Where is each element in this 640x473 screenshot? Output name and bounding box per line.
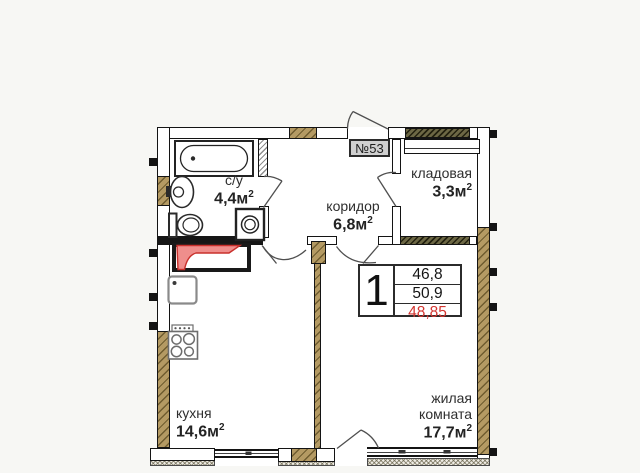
room-area: 17,7м2 xyxy=(396,423,472,443)
window-mullion-marks xyxy=(246,450,451,455)
room-label-corridor: коридор 6,8м2 xyxy=(320,199,386,235)
room-area: 4,4м2 xyxy=(203,189,265,209)
washing-machine-icon xyxy=(236,209,264,240)
room-name: с/у xyxy=(203,173,265,189)
stove-icon xyxy=(169,325,198,359)
area-value-1: 46,8 xyxy=(395,266,460,285)
area-info-table: 1 46,8 50,9 48,85 xyxy=(358,264,462,317)
room-label-bathroom: с/у 4,4м2 xyxy=(203,173,265,209)
room-name: коридор xyxy=(320,199,386,215)
room-name: кухня xyxy=(176,406,256,422)
room-area: 3,3м2 xyxy=(400,182,472,202)
kitchen-door-arc xyxy=(262,246,306,264)
entrance-door-arc xyxy=(348,112,389,130)
floor-plan: №53 1 46,8 50,9 48,85 с/у 4,4м2 коридор … xyxy=(0,0,640,473)
area-value-highlighted: 48,85 xyxy=(395,304,460,322)
balcony-door-arc xyxy=(337,430,379,449)
vent-highlight xyxy=(177,246,240,270)
kitchen-sink-icon xyxy=(169,277,197,304)
area-value-2: 50,9 xyxy=(395,285,460,304)
room-name: комната xyxy=(396,407,472,423)
room-label-kitchen: кухня 14,6м2 xyxy=(176,406,256,442)
living-room-door-arc xyxy=(337,246,379,264)
washbasin-icon xyxy=(166,177,194,208)
room-label-living-room: жилая комната 17,7м2 xyxy=(396,391,472,442)
room-name: кладовая xyxy=(400,166,472,182)
rooms-count: 1 xyxy=(360,266,395,315)
room-area: 14,6м2 xyxy=(176,422,256,442)
room-name: жилая xyxy=(396,391,472,407)
room-label-storage: кладовая 3,3м2 xyxy=(400,166,472,202)
plan-symbols xyxy=(0,0,640,473)
bathroom-door-arc xyxy=(264,176,283,207)
unit-number-badge: №53 xyxy=(349,139,390,157)
area-values: 46,8 50,9 48,85 xyxy=(395,266,460,315)
room-area: 6,8м2 xyxy=(320,215,386,235)
toilet-icon xyxy=(169,214,203,238)
bathtub-icon xyxy=(175,141,253,176)
